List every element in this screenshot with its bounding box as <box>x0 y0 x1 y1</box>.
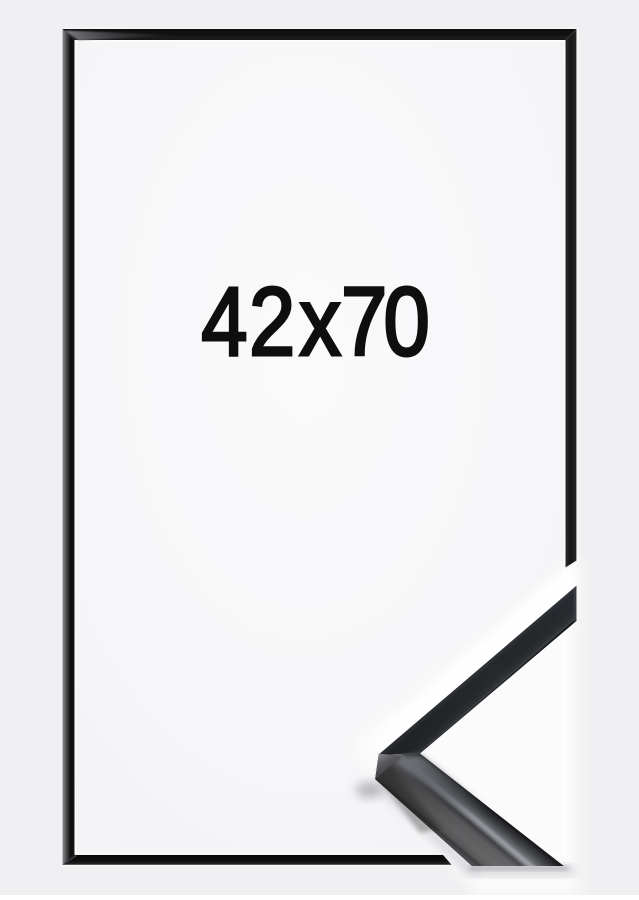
svg-text:42x70: 42x70 <box>201 268 429 376</box>
